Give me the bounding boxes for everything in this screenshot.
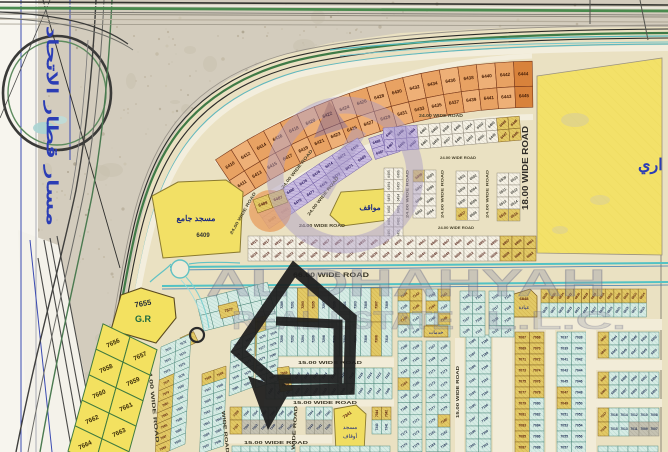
svg-text:7049: 7049 <box>560 402 568 406</box>
svg-text:24.00 WIDE ROAD: 24.00 WIDE ROAD <box>485 170 490 218</box>
svg-text:7082: 7082 <box>533 413 541 417</box>
svg-text:7298: 7298 <box>322 335 326 343</box>
svg-text:6443: 6443 <box>501 94 512 100</box>
svg-text:7072: 7072 <box>533 358 541 362</box>
svg-text:7010: 7010 <box>640 413 648 417</box>
svg-text:7294: 7294 <box>301 335 305 343</box>
svg-text:7007: 7007 <box>650 427 658 431</box>
svg-text:6441: 6441 <box>484 95 495 101</box>
svg-text:7077: 7077 <box>518 391 526 395</box>
svg-text:24.00 WIDE ROAD: 24.00 WIDE ROAD <box>440 155 476 160</box>
svg-text:24.00 WIDE ROAD: 24.00 WIDE ROAD <box>438 225 474 230</box>
svg-text:7087: 7087 <box>518 446 526 450</box>
svg-text:7069: 7069 <box>518 347 526 351</box>
svg-text:24.00 WIDE ROAD: 24.00 WIDE ROAD <box>419 113 463 118</box>
svg-text:6494: 6494 <box>397 194 401 202</box>
svg-text:7067: 7067 <box>518 336 526 340</box>
svg-text:24.00 WIDE ROAD: 24.00 WIDE ROAD <box>440 170 445 218</box>
svg-text:مسجد: مسجد <box>343 425 357 431</box>
svg-text:L.L.C.: L.L.C. <box>486 307 626 335</box>
svg-text:7341: 7341 <box>384 423 388 430</box>
svg-text:6495: 6495 <box>387 170 391 178</box>
svg-text:7344: 7344 <box>375 410 379 417</box>
svg-text:7075: 7075 <box>518 380 526 384</box>
svg-text:15.00 WIDE ROAD: 15.00 WIDE ROAD <box>293 400 358 406</box>
svg-text:7057: 7057 <box>560 446 568 450</box>
svg-text:7039: 7039 <box>560 347 568 351</box>
svg-text:7044: 7044 <box>575 369 583 373</box>
svg-text:7073: 7073 <box>518 369 526 373</box>
svg-text:7046: 7046 <box>575 380 583 384</box>
svg-text:7011: 7011 <box>630 427 637 431</box>
svg-text:7085: 7085 <box>518 435 526 439</box>
svg-text:6495: 6495 <box>397 182 401 190</box>
svg-text:7038: 7038 <box>575 336 583 340</box>
svg-text:7047: 7047 <box>560 391 568 395</box>
svg-text:7052: 7052 <box>575 413 583 417</box>
svg-text:7015: 7015 <box>610 427 618 431</box>
svg-text:7290: 7290 <box>280 335 284 343</box>
svg-text:7008: 7008 <box>650 413 658 417</box>
svg-text:6492: 6492 <box>387 206 391 214</box>
svg-text:7308: 7308 <box>374 335 378 343</box>
svg-text:7041: 7041 <box>560 358 568 362</box>
svg-text:7074: 7074 <box>533 369 541 373</box>
svg-text:7016: 7016 <box>610 413 618 417</box>
svg-text:7013: 7013 <box>620 427 628 431</box>
svg-text:مسجد جامع: مسجد جامع <box>177 214 216 224</box>
svg-text:7048: 7048 <box>575 391 583 395</box>
svg-text:7040: 7040 <box>575 347 583 351</box>
svg-text:7296: 7296 <box>311 335 315 343</box>
svg-text:7306: 7306 <box>364 335 368 343</box>
svg-text:7012: 7012 <box>630 413 638 417</box>
svg-text:7079: 7079 <box>518 402 526 406</box>
svg-text:7054: 7054 <box>575 424 583 428</box>
svg-text:7342: 7342 <box>384 410 388 417</box>
svg-text:6409: 6409 <box>196 233 210 239</box>
svg-text:18.00 WIDE ROAD: 18.00 WIDE ROAD <box>521 126 530 210</box>
svg-text:7310: 7310 <box>385 335 389 343</box>
svg-text:6496: 6496 <box>397 170 401 178</box>
svg-text:7088: 7088 <box>533 446 541 450</box>
svg-text:7045: 7045 <box>560 380 568 384</box>
svg-text:7076: 7076 <box>533 380 541 384</box>
svg-text:6494: 6494 <box>387 182 391 190</box>
svg-text:AL DHAHYAH: AL DHAHYAH <box>206 263 606 305</box>
svg-text:7068: 7068 <box>533 336 541 340</box>
svg-text:7051: 7051 <box>560 413 568 417</box>
svg-text:7071: 7071 <box>518 358 526 362</box>
svg-text:7056: 7056 <box>575 435 583 439</box>
svg-text:G.R: G.R <box>135 314 152 324</box>
svg-text:7086: 7086 <box>533 435 541 439</box>
svg-text:7053: 7053 <box>560 424 568 428</box>
svg-text:7343: 7343 <box>375 423 379 430</box>
svg-text:6440: 6440 <box>481 73 492 79</box>
svg-text:مواقف: مواقف <box>359 203 380 213</box>
svg-text:7043: 7043 <box>560 369 568 373</box>
svg-text:7078: 7078 <box>533 391 541 395</box>
svg-text:6493: 6493 <box>387 194 391 202</box>
svg-text:6444: 6444 <box>518 71 529 76</box>
svg-text:7037: 7037 <box>560 336 568 340</box>
svg-text:7083: 7083 <box>518 424 526 428</box>
svg-text:7080: 7080 <box>533 402 541 406</box>
svg-text:7050: 7050 <box>575 402 583 406</box>
svg-text:15.00 WIDE ROAD: 15.00 WIDE ROAD <box>244 440 309 446</box>
svg-text:مسار قطار الاتحاد: مسار قطار الاتحاد <box>43 26 60 226</box>
svg-text:7055: 7055 <box>560 435 568 439</box>
svg-text:7042: 7042 <box>575 358 583 362</box>
svg-text:7009: 7009 <box>640 427 648 431</box>
svg-text:7084: 7084 <box>533 424 541 428</box>
svg-text:اري: اري <box>638 157 663 175</box>
svg-text:6445: 6445 <box>519 93 530 98</box>
svg-text:15.00 WIDE ROAD: 15.00 WIDE ROAD <box>455 366 460 418</box>
svg-text:7014: 7014 <box>620 413 628 417</box>
svg-text:7070: 7070 <box>533 347 541 351</box>
svg-text:7081: 7081 <box>518 413 526 417</box>
svg-text:7292: 7292 <box>290 335 294 343</box>
svg-text:7058: 7058 <box>575 446 583 450</box>
svg-text:6442: 6442 <box>500 72 511 78</box>
